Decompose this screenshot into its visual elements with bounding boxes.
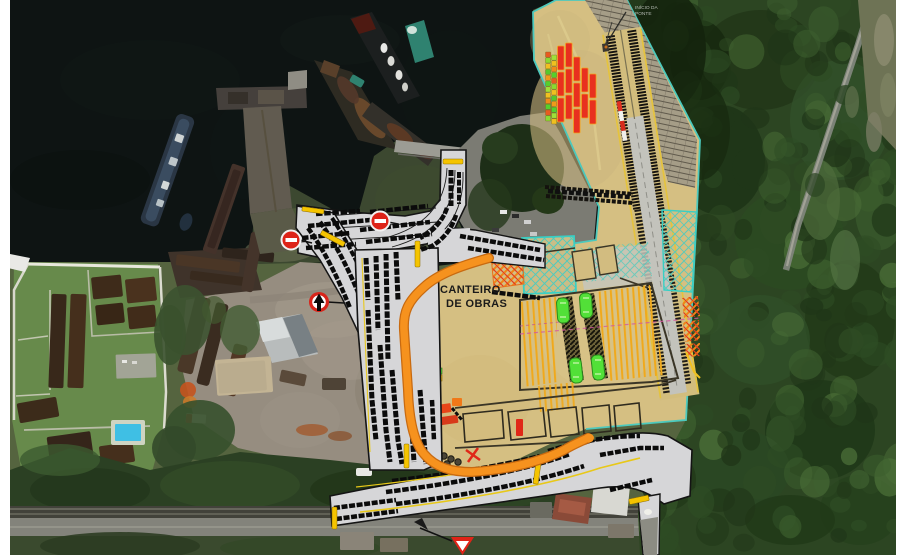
svg-text:DE OBRAS: DE OBRAS [446, 298, 507, 310]
svg-text:CANTEIRO: CANTEIRO [440, 284, 501, 296]
svg-text:PONTE: PONTE [635, 11, 652, 17]
svg-text:INÍCIO DA: INÍCIO DA [635, 4, 658, 11]
